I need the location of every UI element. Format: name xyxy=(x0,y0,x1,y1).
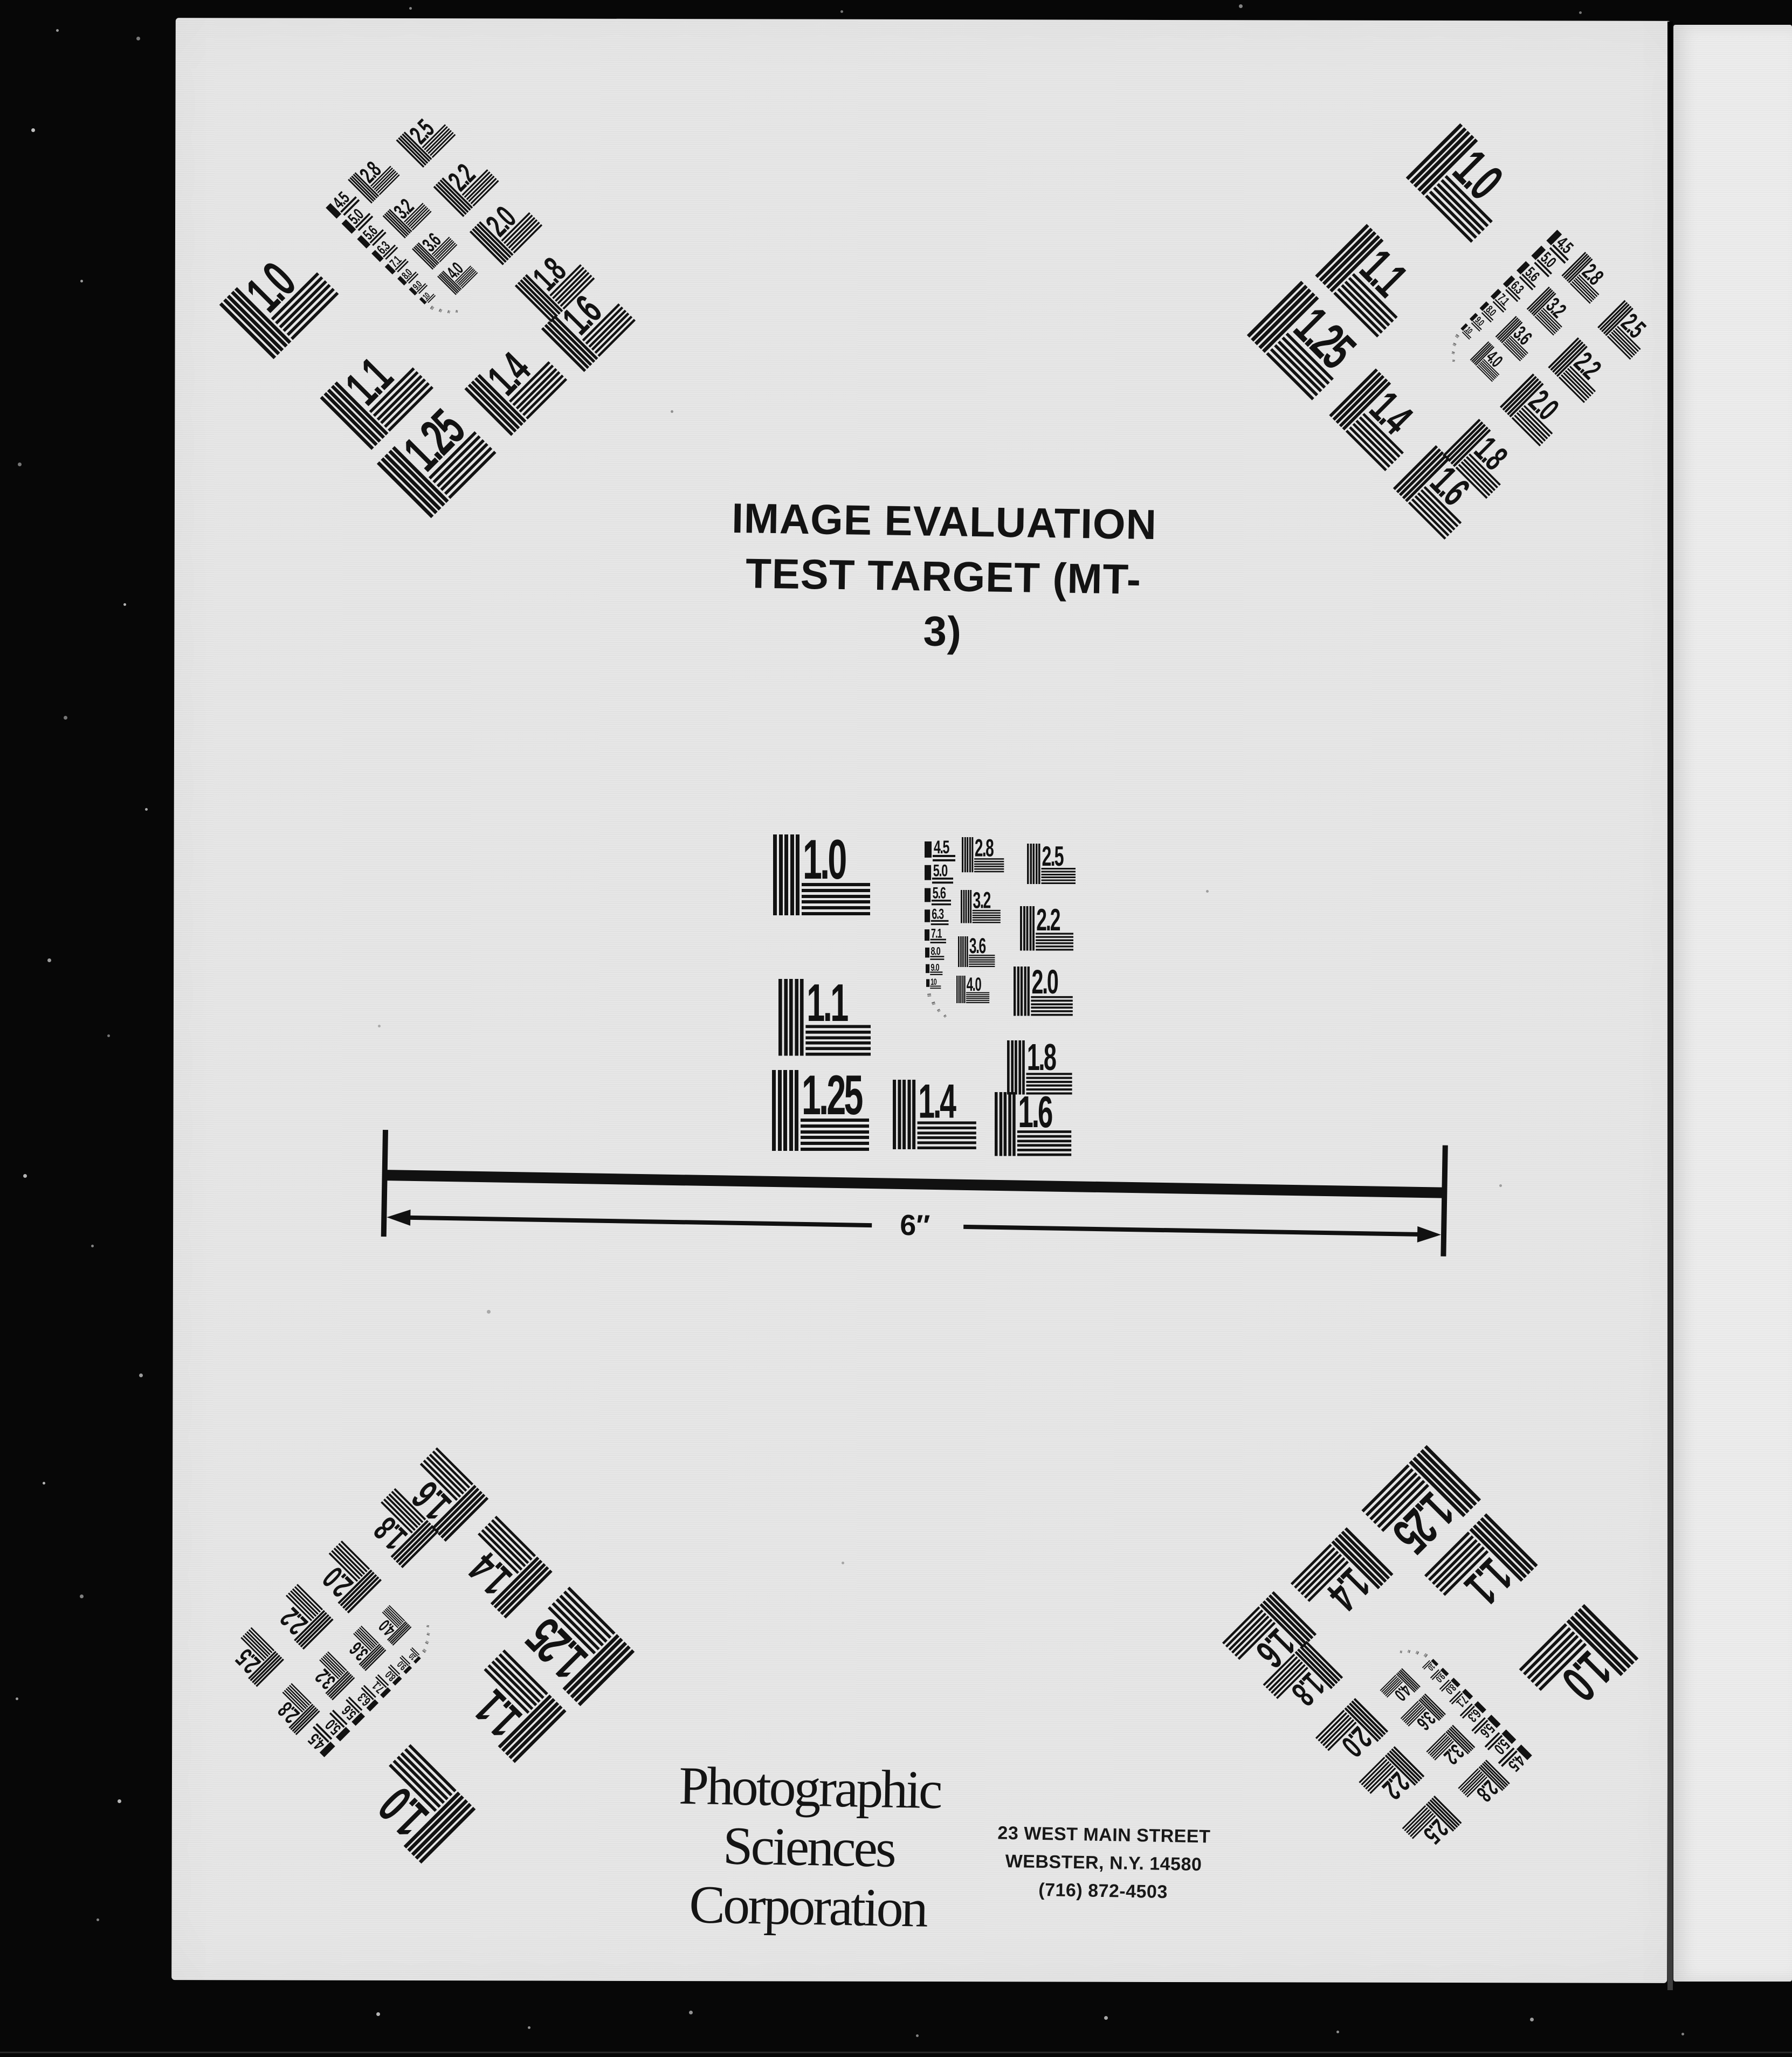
step-bar xyxy=(926,964,929,974)
micro-step-mark xyxy=(1452,351,1455,354)
aperture-step-6.3: 6.3 xyxy=(925,908,950,926)
block-label: 3.6 xyxy=(969,935,985,957)
arrow-line-right-segment xyxy=(963,1225,1423,1237)
pattern-block-1.0: 1.0 xyxy=(773,834,871,915)
micro-step-mark xyxy=(927,993,931,997)
block-label: 3.2 xyxy=(973,889,990,912)
pattern-block-4.0: 4.0 xyxy=(1470,341,1511,382)
vertical-bars xyxy=(1007,1040,1025,1095)
step-bar xyxy=(925,909,930,922)
horizontal-bars xyxy=(1042,868,1076,884)
org-name-line-1: Photographic xyxy=(618,1755,1002,1821)
horizontal-bars xyxy=(969,955,995,967)
horizontal-bars xyxy=(1036,933,1073,951)
micro-step-mark xyxy=(430,306,435,310)
scale-length-label: 6″ xyxy=(869,1210,961,1241)
step-underline-bars xyxy=(930,956,944,960)
micro-step-mark xyxy=(1416,1651,1419,1654)
micro-step-mark xyxy=(439,308,442,312)
facing-page-edge xyxy=(1673,25,1792,1982)
address-city: WEBSTER, N.Y. 14580 xyxy=(988,1847,1220,1879)
pattern-block-4.0: 4.0 xyxy=(1380,1668,1421,1709)
pattern-block-2.2: 2.2 xyxy=(1020,906,1074,951)
vertical-bars xyxy=(1014,967,1030,1016)
block-label: 1.1 xyxy=(807,976,847,1030)
horizontal-bars xyxy=(1031,996,1072,1016)
step-underline-bars xyxy=(930,985,941,989)
aperture-step-10: 10 xyxy=(926,978,942,989)
step-label: 10 xyxy=(931,978,936,986)
block-label: 2.2 xyxy=(1036,905,1059,935)
micro-step-mark xyxy=(426,1625,429,1627)
vertical-bars xyxy=(958,936,968,967)
micro-step-mark xyxy=(1455,334,1459,339)
step-label: 8.0 xyxy=(931,945,940,957)
step-label: 4.5 xyxy=(934,838,949,857)
vertical-bars xyxy=(962,837,973,872)
scanned-microfilm-frame: 1.01.11.251.41.62.83.23.64.02.52.22.01.8… xyxy=(0,0,1792,2057)
step-label: 5.6 xyxy=(933,885,946,901)
step-label: 7.1 xyxy=(931,927,942,940)
block-label: 1.0 xyxy=(803,832,845,888)
pattern-block-2.8: 2.8 xyxy=(962,837,1004,872)
scan-edge-line xyxy=(0,2052,1792,2053)
page-fold-gutter xyxy=(1667,22,1673,1990)
page-title: IMAGE EVALUATION TEST TARGET (MT-3) xyxy=(729,491,1158,662)
pattern-block-1.8: 1.8 xyxy=(1007,1040,1073,1095)
step-bar xyxy=(925,841,932,858)
organization-address: 23 WEST MAIN STREET WEBSTER, N.Y. 14580 … xyxy=(987,1819,1221,1907)
step-bar xyxy=(925,948,929,958)
pattern-block-1.1: 1.1 xyxy=(778,979,872,1056)
right-arrowhead-icon xyxy=(1417,1226,1441,1243)
pattern-block-2.0: 2.0 xyxy=(1014,967,1073,1016)
micro-step-mark xyxy=(456,310,458,313)
micro-step-mark xyxy=(426,1633,430,1635)
scale-bar-line xyxy=(386,1170,1444,1198)
address-street: 23 WEST MAIN STREET xyxy=(988,1819,1220,1851)
pattern-block-4.0: 4.0 xyxy=(437,254,478,295)
step-underline-bars xyxy=(932,900,951,905)
horizontal-bars xyxy=(974,858,1004,872)
step-label: 9.0 xyxy=(931,962,939,972)
org-name-line-3: Corporation xyxy=(616,1874,1000,1939)
horizontal-bars xyxy=(973,910,1001,923)
micro-step-mark xyxy=(943,1014,947,1018)
horizontal-bars xyxy=(802,883,870,915)
pattern-block-3.2: 3.2 xyxy=(961,890,1001,923)
pattern-block-3.2: 3.2 xyxy=(1426,1725,1475,1774)
step-bar xyxy=(925,929,929,941)
vertical-bars xyxy=(778,979,804,1056)
aperture-step-4.5: 4.5 xyxy=(925,840,957,862)
micro-step-mark xyxy=(1452,360,1455,362)
block-label: 2.5 xyxy=(1042,843,1063,871)
micro-step-mark xyxy=(422,1649,426,1653)
horizontal-bars xyxy=(805,1025,871,1056)
block-label: 2.0 xyxy=(1032,965,1058,999)
pattern-block-3.2: 3.2 xyxy=(383,189,432,238)
step-underline-bars xyxy=(932,878,953,883)
pattern-block-4.0: 4.0 xyxy=(371,1605,412,1646)
horizontal-bars xyxy=(1026,1073,1072,1094)
micro-step-mark xyxy=(1424,1653,1428,1658)
micro-step-mark xyxy=(425,1641,429,1644)
scale-right-tick xyxy=(1441,1145,1448,1257)
step-underline-bars xyxy=(931,939,946,943)
block-label: 1.8 xyxy=(1027,1039,1056,1076)
vertical-bars xyxy=(956,976,966,1003)
six-inch-scale-bar: 6″ xyxy=(381,1130,1450,1272)
resolution-test-pattern-center: 1.01.11.251.41.62.83.23.64.02.52.22.01.8… xyxy=(772,834,1077,1163)
step-underline-bars xyxy=(933,855,955,861)
horizontal-bars xyxy=(966,992,989,1003)
step-bar xyxy=(926,979,929,986)
block-label: 1.6 xyxy=(1018,1090,1051,1134)
block-label: 1.25 xyxy=(802,1067,861,1123)
aperture-step-8.0: 8.0 xyxy=(925,947,945,961)
micro-step-mark xyxy=(1400,1651,1402,1653)
arrow-line-left-segment xyxy=(403,1216,872,1227)
title-line-2: TEST TARGET (MT-3) xyxy=(729,546,1157,662)
block-label: 1.4 xyxy=(918,1078,954,1126)
micro-step-mark xyxy=(932,1002,935,1005)
step-underline-bars xyxy=(930,971,942,975)
micro-step-mark xyxy=(1408,1650,1410,1653)
address-phone: (716) 872-4503 xyxy=(987,1875,1219,1907)
organization-name: Photographic Sciences Corporation xyxy=(616,1755,1002,1939)
aperture-step-5.0: 5.0 xyxy=(925,864,955,885)
step-bar xyxy=(925,888,931,902)
pattern-block-4.0: 4.0 xyxy=(956,976,990,1003)
pattern-block-2.5: 2.5 xyxy=(1027,844,1076,884)
left-arrowhead-icon xyxy=(387,1209,410,1226)
pattern-block-3.6: 3.6 xyxy=(958,936,995,967)
block-label: 2.8 xyxy=(975,836,993,860)
step-underline-bars xyxy=(931,920,949,925)
vertical-bars xyxy=(961,890,971,923)
vertical-bars xyxy=(773,834,799,915)
step-bar xyxy=(925,865,931,880)
vertical-bars xyxy=(1020,906,1035,951)
step-label: 6.3 xyxy=(932,907,943,922)
micro-step-mark xyxy=(1452,343,1456,346)
title-line-1: IMAGE EVALUATION xyxy=(731,491,1158,552)
step-label: 5.0 xyxy=(933,862,947,879)
micro-step-mark xyxy=(937,1009,941,1012)
page-dark-specks xyxy=(0,0,2,2)
pattern-block-3.2: 3.2 xyxy=(1527,287,1576,336)
org-name-line-2: Sciences xyxy=(617,1814,1001,1880)
pattern-block-3.2: 3.2 xyxy=(306,1651,355,1700)
vertical-bars xyxy=(1027,844,1040,884)
aperture-step-5.6: 5.6 xyxy=(925,887,953,906)
block-label: 4.0 xyxy=(967,975,981,993)
aperture-step-9.0: 9.0 xyxy=(926,963,943,976)
aperture-step-7.1: 7.1 xyxy=(925,928,947,944)
micro-step-mark xyxy=(447,310,450,313)
